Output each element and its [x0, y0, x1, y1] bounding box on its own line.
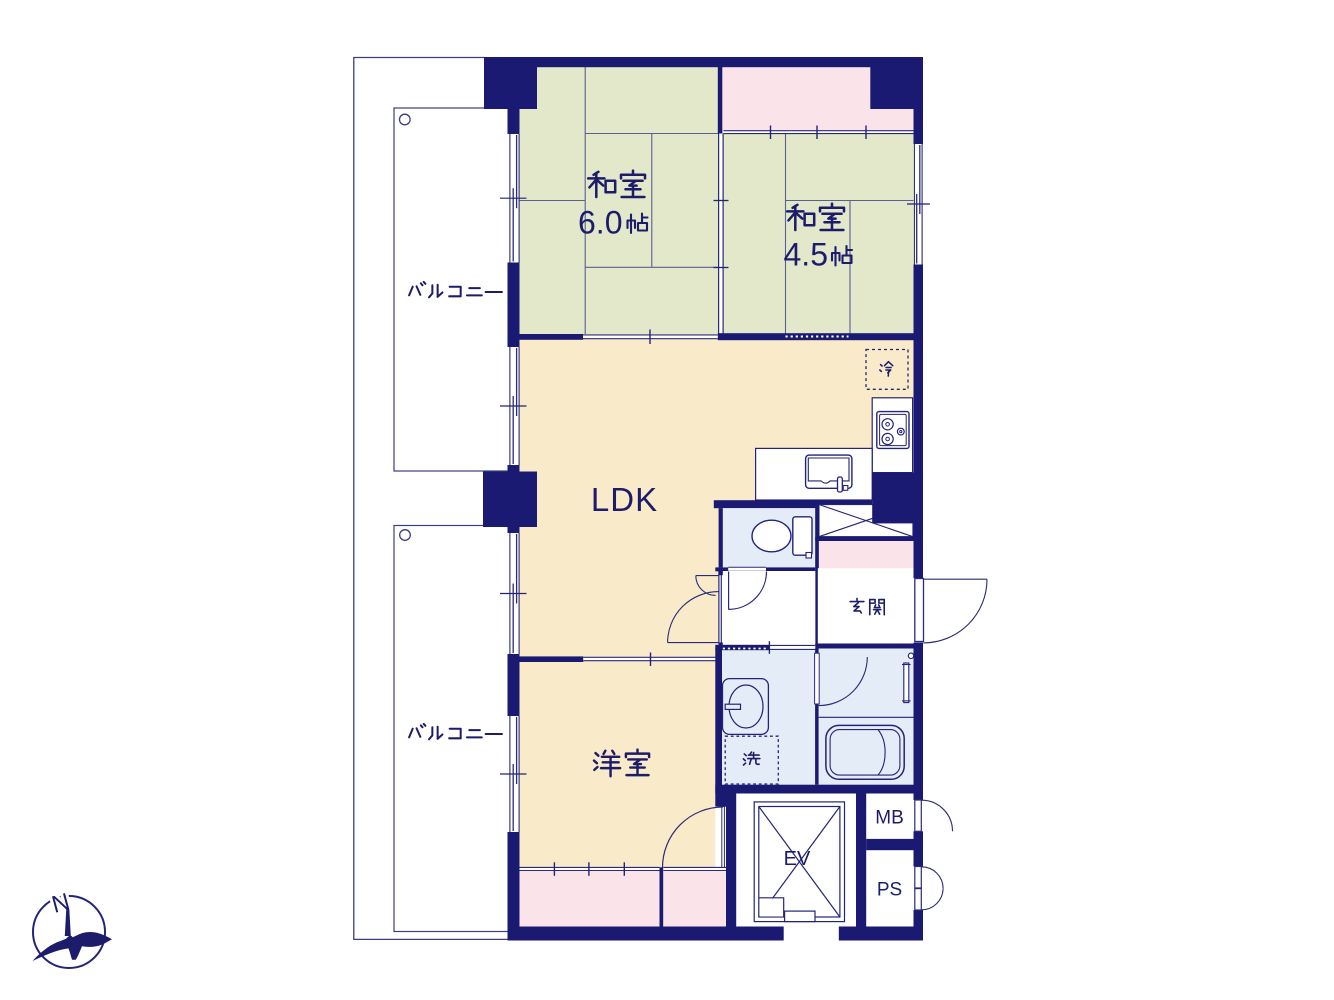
svg-text:LDK: LDK [591, 481, 658, 518]
svg-text:EV: EV [784, 848, 811, 870]
svg-text:4.5: 4.5 [784, 237, 828, 273]
svg-text:MB: MB [875, 808, 904, 829]
svg-text:PS: PS [877, 880, 902, 901]
svg-text:6.0: 6.0 [578, 205, 622, 241]
